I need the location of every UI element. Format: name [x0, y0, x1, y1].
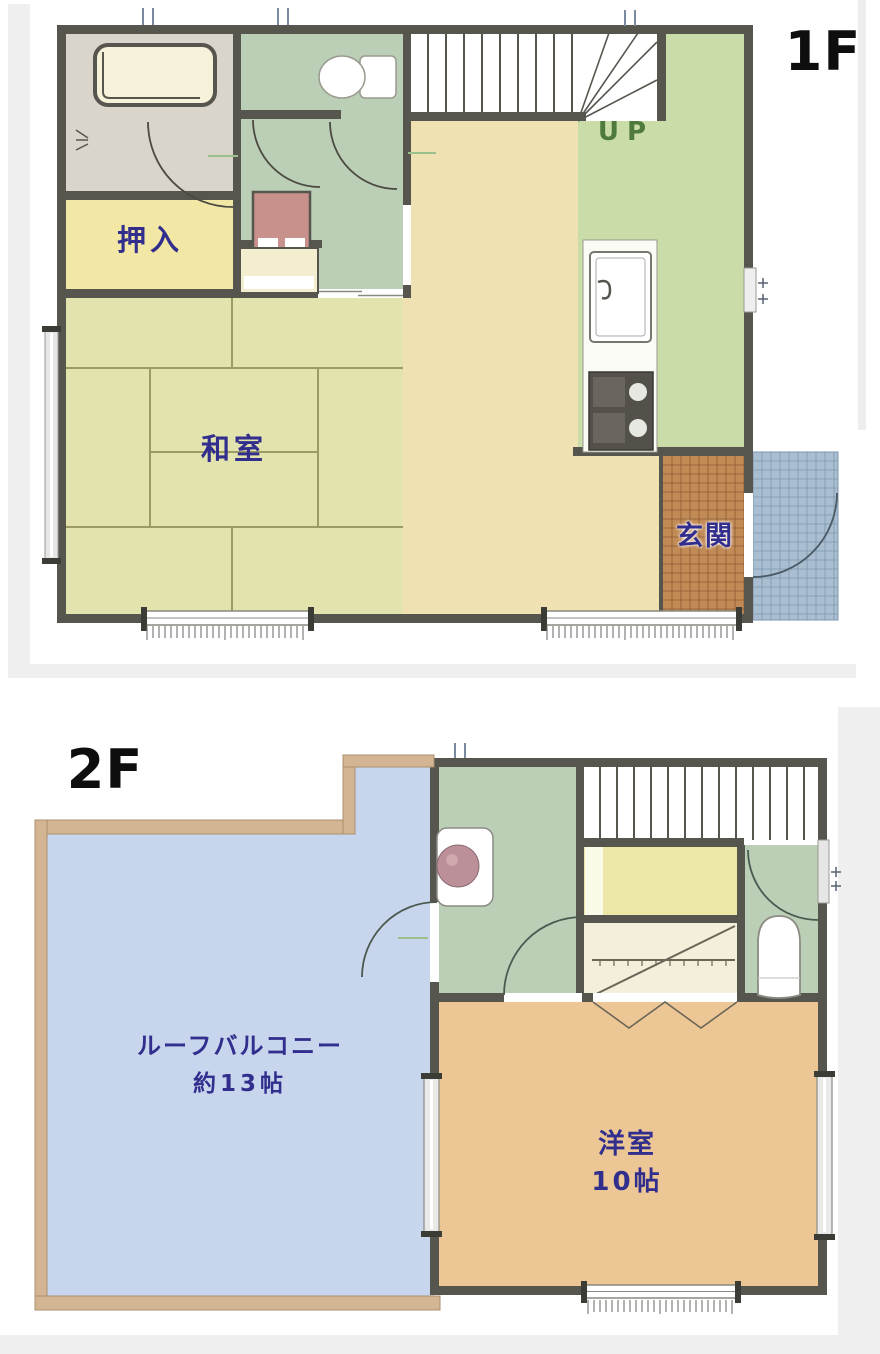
stove [589, 372, 653, 450]
window-western-east [814, 1071, 835, 1240]
floorplan-page: 1F UP 押入 和室 玄関 2F ルーフバルコニー 約13帖 洋室 10帖 [0, 0, 880, 1354]
window-kitchen-east [744, 268, 768, 312]
stairs-1f [411, 30, 657, 121]
kitchen-sink [590, 252, 651, 342]
roof-balcony-floor-upper [355, 767, 434, 834]
washing-machine [253, 192, 310, 250]
toilet-bowl-2f [758, 916, 800, 998]
window-ticks-north-2f [455, 743, 465, 758]
window-toilet-east [818, 840, 841, 903]
room-oshiire [57, 191, 241, 298]
washbasin-2f [437, 828, 493, 906]
floorplan-drawing [0, 0, 880, 1354]
bathtub [95, 45, 215, 105]
room-dk-lower [578, 447, 672, 623]
kitchen-counter [583, 240, 657, 452]
toilet-bowl-1f [319, 56, 396, 98]
room-washitsu [57, 289, 411, 623]
roof-balcony-floor [47, 834, 434, 1296]
vanity-cabinet [240, 248, 318, 293]
closet-yellow [583, 845, 744, 922]
floor-1f-plan [42, 8, 838, 640]
window-western-south [581, 1281, 741, 1314]
room-genkan [663, 456, 753, 623]
window-washitsu-south [141, 607, 314, 640]
window-ticks-north [143, 8, 635, 26]
window-western-west [421, 1073, 442, 1237]
room-western [434, 998, 822, 1290]
floor-2f-plan [35, 743, 841, 1314]
window-dk-south [541, 607, 742, 640]
window-washitsu-west [42, 326, 61, 564]
